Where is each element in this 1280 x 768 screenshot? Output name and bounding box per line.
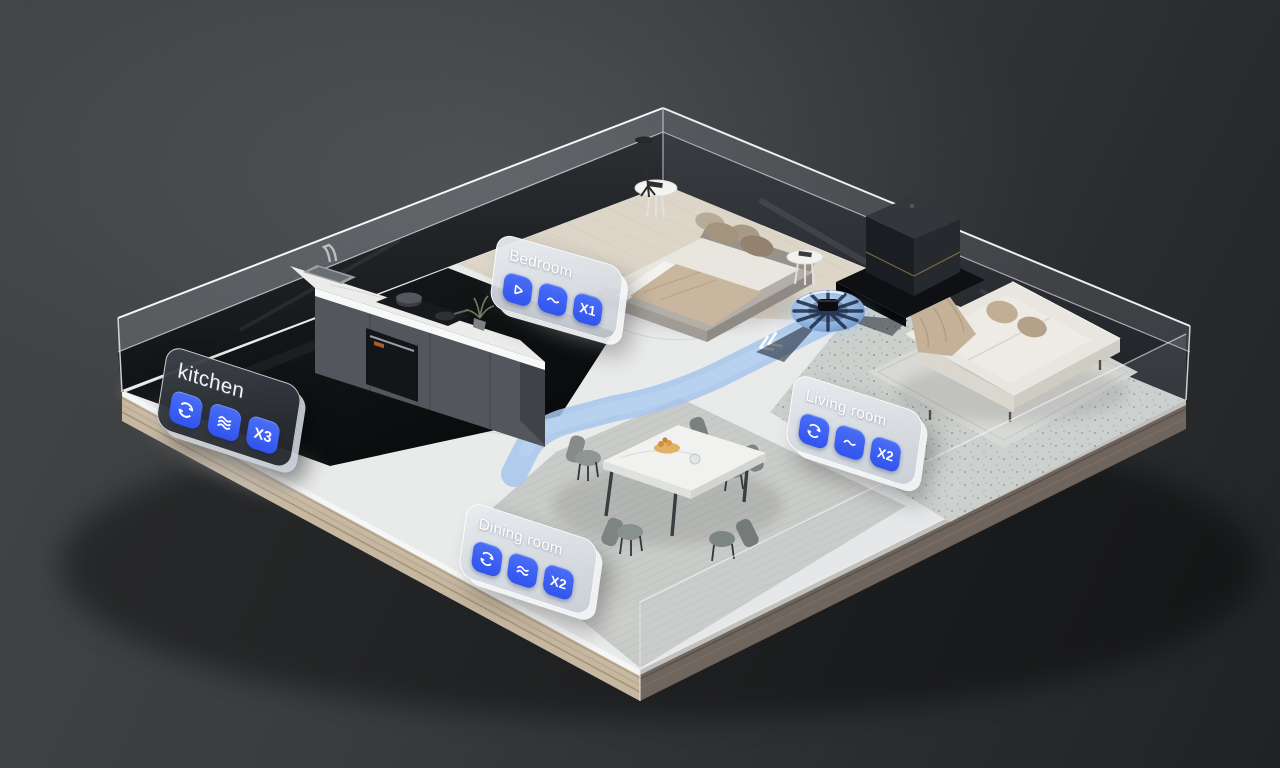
waves-3-icon [206, 402, 242, 444]
count-badge: X2 [542, 563, 575, 602]
wave-1-icon [537, 281, 569, 318]
wave-1-icon [833, 423, 866, 462]
smart-home-render: kitchen X3 Bedroom X1 Living room [0, 0, 1280, 768]
count-badge: X2 [869, 435, 902, 474]
count-badge: X1 [572, 291, 604, 328]
cyclone-icon [470, 539, 503, 578]
cyclone-icon [797, 411, 830, 450]
waves-2-icon [506, 551, 539, 590]
cyclone-icon [168, 389, 204, 431]
triangle-icon [502, 271, 534, 308]
count-badge: X3 [245, 414, 281, 456]
